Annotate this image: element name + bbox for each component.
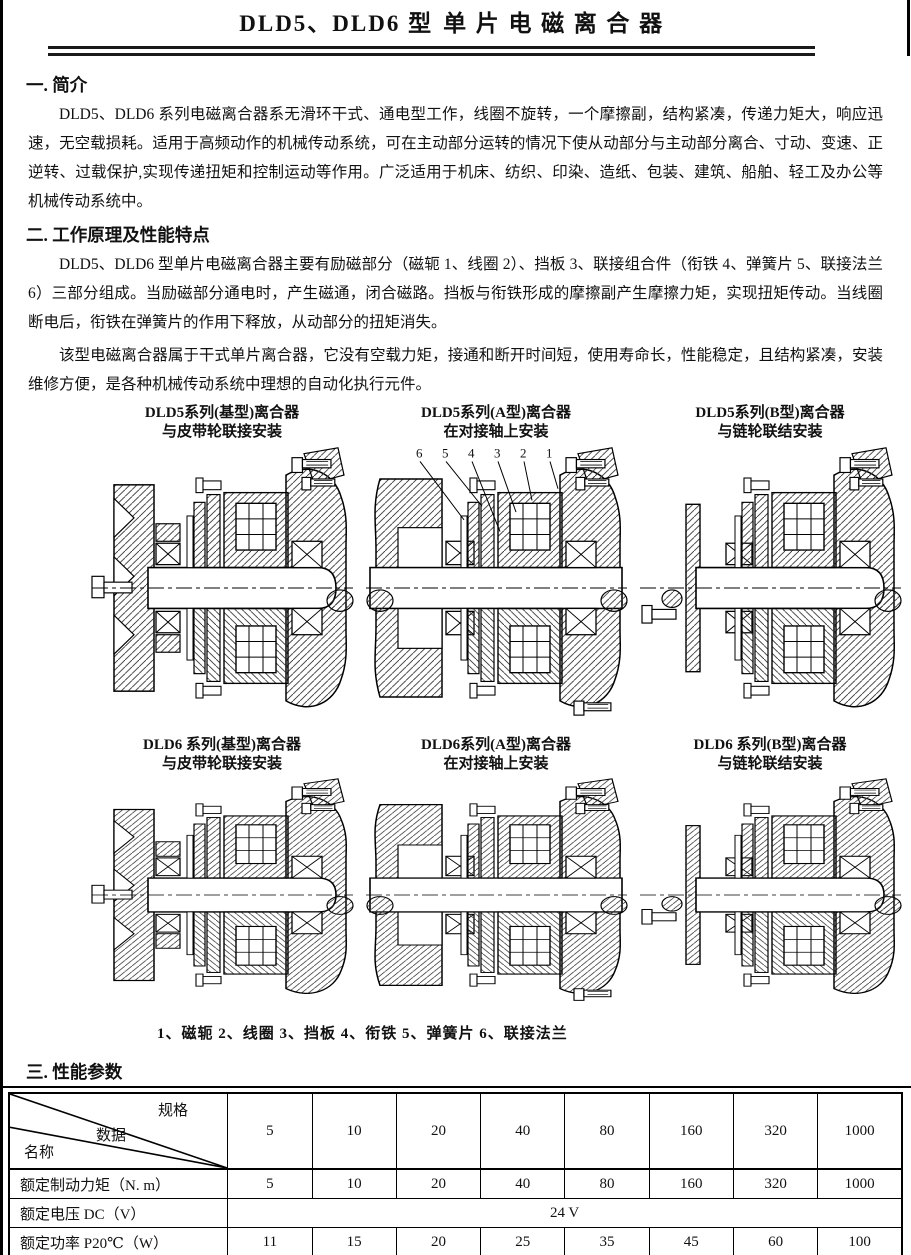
callout-number: 3 xyxy=(494,447,500,461)
caption-line1: DLD6系列(A型)离合器 xyxy=(359,736,633,755)
spec-column-header: 20 xyxy=(396,1093,480,1169)
document-page: DLD5、DLD6 型单片电磁离合器 一. 简介 DLD5、DLD6 系列电磁离… xyxy=(0,0,911,1255)
clutch-cross-section-diagram xyxy=(638,442,903,734)
figure-dld5-b: DLD5系列(B型)离合器 与链轮联结安装 xyxy=(633,402,907,734)
page-right-border-segment xyxy=(907,0,910,56)
table-cell: 100 xyxy=(818,1228,902,1255)
section-1-heading: 一. 简介 xyxy=(26,74,911,96)
spec-column-header: 320 xyxy=(733,1093,817,1169)
figure-caption: DLD5系列(B型)离合器 与链轮联结安装 xyxy=(633,402,907,442)
clutch-cross-section-diagram xyxy=(90,442,355,734)
corner-label-data: 数据 xyxy=(96,1124,126,1145)
caption-line1: DLD5系列(基型)离合器 xyxy=(85,404,359,423)
table-row-power: 额定功率 P20℃（W） 11 15 20 25 35 45 60 100 xyxy=(9,1228,902,1255)
table-cell: 5 xyxy=(228,1169,312,1199)
figure-dld5-basic: DLD5系列(基型)离合器 与皮带轮联接安装 xyxy=(85,402,359,734)
table-cell: 320 xyxy=(733,1169,817,1199)
caption-line1: DLD5系列(A型)离合器 xyxy=(359,404,633,423)
figures-row-1: DLD5系列(基型)离合器 与皮带轮联接安装 DLD5系列(A型)离合器 在对接… xyxy=(85,402,908,734)
section-1-paragraph: DLD5、DLD6 系列电磁离合器系无滑环干式、通电型工作，线圈不旋转，一个摩擦… xyxy=(28,100,883,216)
table-cell: 40 xyxy=(481,1169,565,1199)
spec-column-header: 80 xyxy=(565,1093,649,1169)
title-double-rule xyxy=(48,46,815,56)
table-cell: 1000 xyxy=(818,1169,902,1199)
callout-number: 4 xyxy=(468,447,475,461)
figure-dld6-b: DLD6 系列(B型)离合器 与链轮联结安装 xyxy=(633,734,907,1016)
clutch-cross-section-diagram xyxy=(90,774,355,1016)
table-cell: 20 xyxy=(396,1228,480,1255)
table-corner-cell: 规格 数据 名称 xyxy=(9,1093,228,1169)
callout-number: 6 xyxy=(416,447,423,461)
spec-column-header: 160 xyxy=(649,1093,733,1169)
caption-line1: DLD6 系列(基型)离合器 xyxy=(85,736,359,755)
spec-column-header: 5 xyxy=(228,1093,312,1169)
table-cell-merged: 24 V xyxy=(228,1199,902,1228)
table-cell: 35 xyxy=(565,1228,649,1255)
section-2-paragraph-1: DLD5、DLD6 型单片电磁离合器主要有励磁部分（磁轭 1、线圈 2）、挡板 … xyxy=(28,250,883,337)
row-label: 额定制动力矩（N. m） xyxy=(9,1169,228,1199)
caption-line1: DLD6 系列(B型)离合器 xyxy=(633,736,907,755)
figure-dld6-a: DLD6系列(A型)离合器 在对接轴上安装 xyxy=(359,734,633,1016)
title-model-text: DLD5、DLD6 型 xyxy=(239,11,433,36)
spec-column-header: 40 xyxy=(481,1093,565,1169)
section-2-paragraph-2: 该型电磁离合器属于干式单片离合器，它没有空载力矩，接通和断开时间短，使用寿命长，… xyxy=(28,341,883,399)
corner-label-spec: 规格 xyxy=(158,1099,188,1120)
row-label: 额定功率 P20℃（W） xyxy=(9,1228,228,1255)
clutch-cross-section-diagram xyxy=(638,774,903,1016)
table-cell: 10 xyxy=(312,1169,396,1199)
caption-line2: 在对接轴上安装 xyxy=(359,423,633,442)
spec-column-header: 10 xyxy=(312,1093,396,1169)
table-cell: 11 xyxy=(228,1228,312,1255)
section-3-heading: 三. 性能参数 xyxy=(0,1061,911,1088)
table-row-torque: 额定制动力矩（N. m） 5 10 20 40 80 160 320 1000 xyxy=(9,1169,902,1199)
figure-caption: DLD5系列(A型)离合器 在对接轴上安装 xyxy=(359,402,633,442)
callout-number: 5 xyxy=(442,447,448,461)
page-title: DLD5、DLD6 型单片电磁离合器 xyxy=(0,9,911,39)
table-cell: 20 xyxy=(396,1169,480,1199)
table-cell: 45 xyxy=(649,1228,733,1255)
clutch-cross-section-diagram xyxy=(364,774,629,1016)
figure-caption: DLD6 系列(B型)离合器 与链轮联结安装 xyxy=(633,734,907,774)
table-row-voltage: 额定电压 DC（V） 24 V xyxy=(9,1199,902,1228)
caption-line2: 与链轮联结安装 xyxy=(633,755,907,774)
clutch-cross-section-diagram: 654321 xyxy=(364,442,629,734)
caption-line2: 与皮带轮联接安装 xyxy=(85,423,359,442)
callout-number: 2 xyxy=(520,447,526,461)
table-cell: 160 xyxy=(649,1169,733,1199)
figures-block: DLD5系列(基型)离合器 与皮带轮联接安装 DLD5系列(A型)离合器 在对接… xyxy=(85,402,908,1043)
figure-dld6-basic: DLD6 系列(基型)离合器 与皮带轮联接安装 xyxy=(85,734,359,1016)
table-cell: 80 xyxy=(565,1169,649,1199)
page-left-border xyxy=(0,0,3,1255)
spec-column-header: 1000 xyxy=(818,1093,902,1169)
caption-line2: 与皮带轮联接安装 xyxy=(85,755,359,774)
table-cell: 60 xyxy=(733,1228,817,1255)
callout-number: 1 xyxy=(546,447,552,461)
figure-caption: DLD5系列(基型)离合器 与皮带轮联接安装 xyxy=(85,402,359,442)
caption-line1: DLD5系列(B型)离合器 xyxy=(633,404,907,423)
row-label: 额定电压 DC（V） xyxy=(9,1199,228,1228)
table-header-row: 规格 数据 名称 5 10 20 40 80 160 320 1000 xyxy=(9,1093,902,1169)
title-name-text: 单片电磁离合器 xyxy=(443,11,672,36)
figure-caption: DLD6系列(A型)离合器 在对接轴上安装 xyxy=(359,734,633,774)
caption-line2: 在对接轴上安装 xyxy=(359,755,633,774)
figure-caption: DLD6 系列(基型)离合器 与皮带轮联接安装 xyxy=(85,734,359,774)
performance-table: 规格 数据 名称 5 10 20 40 80 160 320 1000 额定制动… xyxy=(8,1092,903,1255)
caption-line2: 与链轮联结安装 xyxy=(633,423,907,442)
table-cell: 25 xyxy=(481,1228,565,1255)
table-cell: 15 xyxy=(312,1228,396,1255)
figure-parts-legend: 1、磁轭 2、线圈 3、挡板 4、衔铁 5、弹簧片 6、联接法兰 xyxy=(157,1022,908,1043)
section-2-heading: 二. 工作原理及性能特点 xyxy=(26,224,911,246)
corner-label-name: 名称 xyxy=(24,1141,54,1162)
figures-row-2: DLD6 系列(基型)离合器 与皮带轮联接安装 DLD6系列(A型)离合器 在对… xyxy=(85,734,908,1016)
figure-dld5-a: DLD5系列(A型)离合器 在对接轴上安装 654321 xyxy=(359,402,633,734)
